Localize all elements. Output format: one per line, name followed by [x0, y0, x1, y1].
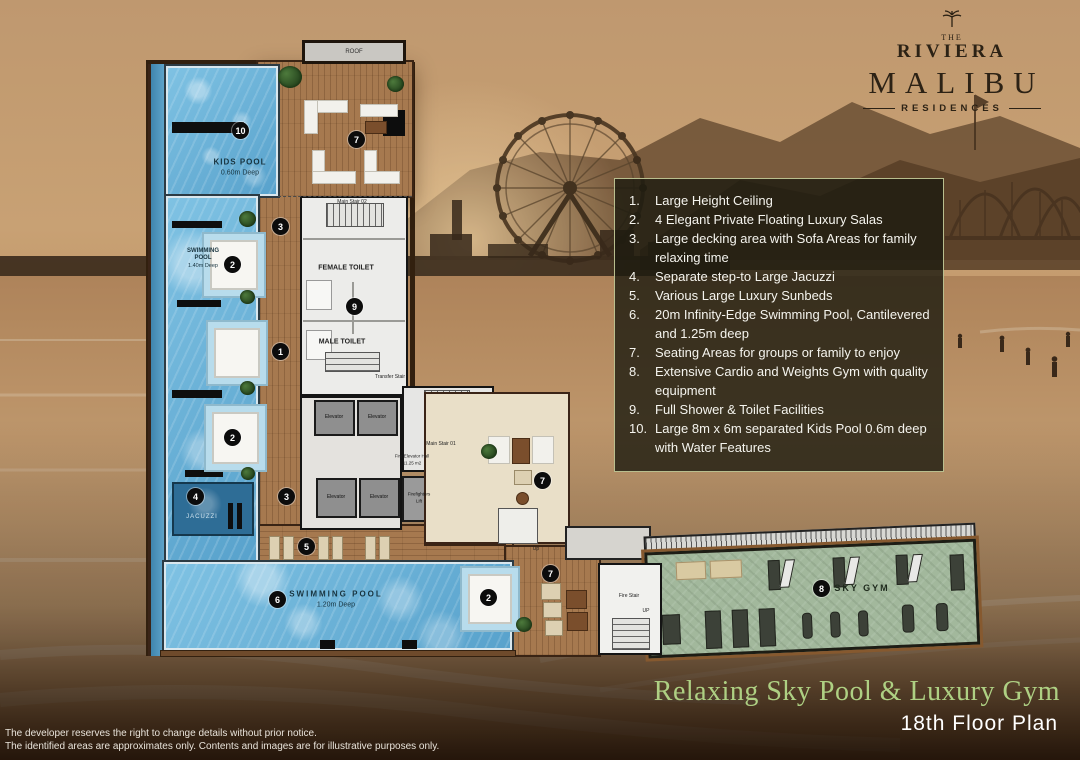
plan-marker: 8 [813, 580, 830, 597]
brand-rule-left [863, 108, 895, 109]
sky-gym-wing [643, 523, 980, 659]
jacuzzi-step [237, 503, 242, 529]
legend-item: 4.Separate step-to Large Jacuzzi [629, 267, 933, 286]
brand-malibu: MALIBU [852, 65, 1052, 101]
gym-corridor [565, 526, 651, 560]
plan-marker: 7 [542, 565, 559, 582]
legend-item-text: Various Large Luxury Sunbeds [655, 286, 933, 305]
plant [239, 211, 256, 227]
plant [516, 617, 532, 632]
water-feature-bar [177, 300, 221, 307]
core-partition [303, 238, 405, 240]
palm-ornament-icon [939, 10, 965, 28]
stair-up [498, 508, 538, 544]
treadmill [759, 608, 777, 647]
legend-item-text: Large 8m x 6m separated Kids Pool 0.6m d… [655, 419, 933, 457]
plant [240, 290, 255, 304]
kids-pool-label: KIDS POOL [213, 158, 266, 167]
pool-edge-tick [402, 640, 417, 649]
water-feature-bar [172, 221, 222, 228]
legend-item-number: 5. [629, 286, 655, 305]
plan-marker: 5 [298, 538, 315, 555]
sunbed [365, 536, 376, 560]
upper-pool-label-2: POOL [194, 255, 211, 261]
gym-floor [644, 539, 980, 659]
deck-table [541, 583, 561, 600]
upper-pool-label-1: SWIMMING [187, 248, 219, 254]
gym-bench [907, 554, 923, 583]
brand-rule-right [1009, 108, 1041, 109]
firefighters-lift-label-1: Firefighters [408, 492, 431, 497]
brand-residences: RESIDENCES [901, 103, 1003, 114]
legend-item-number: 9. [629, 400, 655, 419]
brand-riviera: RIVIERA [852, 41, 1052, 63]
up-label: UP [643, 608, 650, 614]
legend-item-number: 2. [629, 210, 655, 229]
legend-item: 10.Large 8m x 6m separated Kids Pool 0.6… [629, 419, 933, 457]
plan-marker: 1 [272, 343, 289, 360]
plan-marker: 2 [224, 256, 241, 273]
exercise-bike [830, 611, 841, 637]
jacuzzi-step [228, 503, 233, 529]
side-table [514, 470, 532, 485]
elevator-label: Elevator [325, 414, 343, 420]
legend-item-text: 20m Infinity-Edge Swimming Pool, Cantile… [655, 305, 933, 343]
up-small-label: Up [533, 546, 539, 552]
deck-sofa-table [365, 121, 387, 134]
transfer-stair-label: Transfer Stair [375, 374, 405, 380]
sunbed [379, 536, 390, 560]
legend-item-number: 3. [629, 229, 655, 267]
plan-marker: 3 [278, 488, 295, 505]
treadmill [705, 610, 723, 649]
male-toilet-label: MALE TOILET [319, 339, 366, 346]
upper-pool-depth: 1.40m Deep [188, 263, 218, 269]
plant [240, 381, 255, 395]
core-partition [303, 320, 405, 322]
water-feature-bar [185, 470, 223, 477]
poster-root: ROOF KIDS POOL 0.60m Deep SWIMMING POOL … [0, 0, 1080, 760]
sunbed [332, 536, 343, 560]
elevator-label: Elevator [368, 414, 386, 420]
exercise-bike [802, 613, 813, 639]
plant [278, 66, 302, 88]
deck-table-dark [566, 590, 587, 609]
legend-item: 2.4 Elegant Private Floating Luxury Sala… [629, 210, 933, 229]
legend-item-text: Large Height Ceiling [655, 191, 933, 210]
fire-elevator-hall-label: Fire Elevator Hall [395, 454, 430, 459]
disclaimer-line-2: The identified areas are approximates on… [5, 740, 439, 753]
fire-stair-steps [612, 618, 650, 650]
seating-wing-floor [424, 392, 570, 544]
exercise-bike [858, 610, 869, 636]
legend-item: 1.Large Height Ceiling [629, 191, 933, 210]
legend-item-number: 10. [629, 419, 655, 457]
pool-edge-tick [320, 640, 335, 649]
legend-item-text: Seating Areas for groups or family to en… [655, 343, 933, 362]
legend-item-text: 4 Elegant Private Floating Luxury Salas [655, 210, 933, 229]
page-title: Relaxing Sky Pool & Luxury Gym [654, 676, 1060, 708]
main-stair-02-label: Main Stair 02 [337, 199, 366, 205]
deck-table [545, 620, 563, 636]
brand-logo: THE RIVIERA MALIBU RESIDENCES [852, 10, 1052, 114]
legend-item: 6.20m Infinity-Edge Swimming Pool, Canti… [629, 305, 933, 343]
water-feature-bar [172, 390, 222, 398]
plan-marker: 2 [224, 429, 241, 446]
female-toilet-label: FEMALE TOILET [318, 265, 373, 272]
transfer-stair [325, 352, 380, 372]
legend-panel: 1.Large Height Ceiling 2.4 Elegant Priva… [614, 178, 944, 472]
plan-marker: 9 [346, 298, 363, 315]
legend-item: 3.Large decking area with Sofa Areas for… [629, 229, 933, 267]
dashed-boundary [278, 196, 412, 197]
legend-item: 8.Extensive Cardio and Weights Gym with … [629, 362, 933, 400]
page-subtitle: 18th Floor Plan [901, 712, 1058, 736]
plant [387, 76, 404, 92]
elevator-label: Elevator [327, 494, 345, 500]
floating-sala [214, 328, 260, 378]
toilet-stall [306, 280, 332, 310]
legend-item-text: Separate step-to Large Jacuzzi [655, 267, 933, 286]
firefighters-lift-label-2: Lift [416, 499, 422, 504]
plant [481, 444, 497, 459]
lower-pool-depth: 1.20m Deep [317, 602, 355, 609]
main-stair-02 [326, 203, 384, 227]
armchair [532, 436, 554, 464]
legend-item: 9.Full Shower & Toilet Facilities [629, 400, 933, 419]
plan-marker: 2 [480, 589, 497, 606]
main-stair-01-label: Main Stair 01 [426, 441, 455, 447]
legend-item-text: Full Shower & Toilet Facilities [655, 400, 933, 419]
coffee-table [512, 438, 530, 464]
legend-item-number: 6. [629, 305, 655, 343]
disclaimer-line-1: The developer reserves the right to chan… [5, 727, 317, 740]
legend-item: 5.Various Large Luxury Sunbeds [629, 286, 933, 305]
sunbed [318, 536, 329, 560]
gym-mat [676, 561, 707, 580]
deck-left-strip [258, 196, 302, 532]
legend-item-number: 8. [629, 362, 655, 400]
deck-sofa [304, 100, 318, 134]
gym-bench [779, 559, 795, 588]
kids-pool-depth: 0.60m Deep [221, 170, 259, 177]
sky-gym-label: SKY GYM [834, 583, 889, 593]
jacuzzi-label: JACUZZI [186, 514, 218, 520]
sunbed [269, 536, 280, 560]
gym-machine [662, 614, 681, 645]
plan-marker: 7 [534, 472, 551, 489]
elevator-label: Elevator [370, 494, 388, 500]
lower-pool-label: SWIMMING POOL [289, 590, 383, 599]
deck-sofa [364, 171, 400, 184]
round-stool [516, 492, 529, 505]
legend-item-number: 4. [629, 267, 655, 286]
treadmill [732, 609, 750, 648]
legend-item-text: Extensive Cardio and Weights Gym with qu… [655, 362, 933, 400]
gym-bench [844, 557, 860, 586]
plan-marker: 4 [187, 488, 204, 505]
legend-item-text: Large decking area with Sofa Areas for f… [655, 229, 933, 267]
deck-table [543, 602, 562, 618]
gym-rack [950, 554, 965, 591]
deck-table-dark [567, 612, 588, 631]
deck-sofa [360, 104, 398, 117]
plan-marker: 7 [348, 131, 365, 148]
legend-item-number: 7. [629, 343, 655, 362]
sunbed [283, 536, 294, 560]
exercise-bike [902, 604, 915, 632]
roof-label: ROOF [345, 49, 362, 55]
plan-marker: 6 [269, 591, 286, 608]
plant [241, 467, 255, 480]
fire-stair-label: Fire Stair [619, 593, 639, 599]
legend-item: 7.Seating Areas for groups or family to … [629, 343, 933, 362]
pool-cantilever-edge [160, 650, 516, 657]
gym-mat [710, 559, 743, 578]
plan-marker: 3 [272, 218, 289, 235]
exercise-bike [936, 603, 949, 631]
plan-marker: 10 [232, 122, 249, 139]
deck-sofa [312, 171, 356, 184]
legend-item-number: 1. [629, 191, 655, 210]
fire-elevator-area-label: 11.25 m2 [403, 461, 421, 466]
